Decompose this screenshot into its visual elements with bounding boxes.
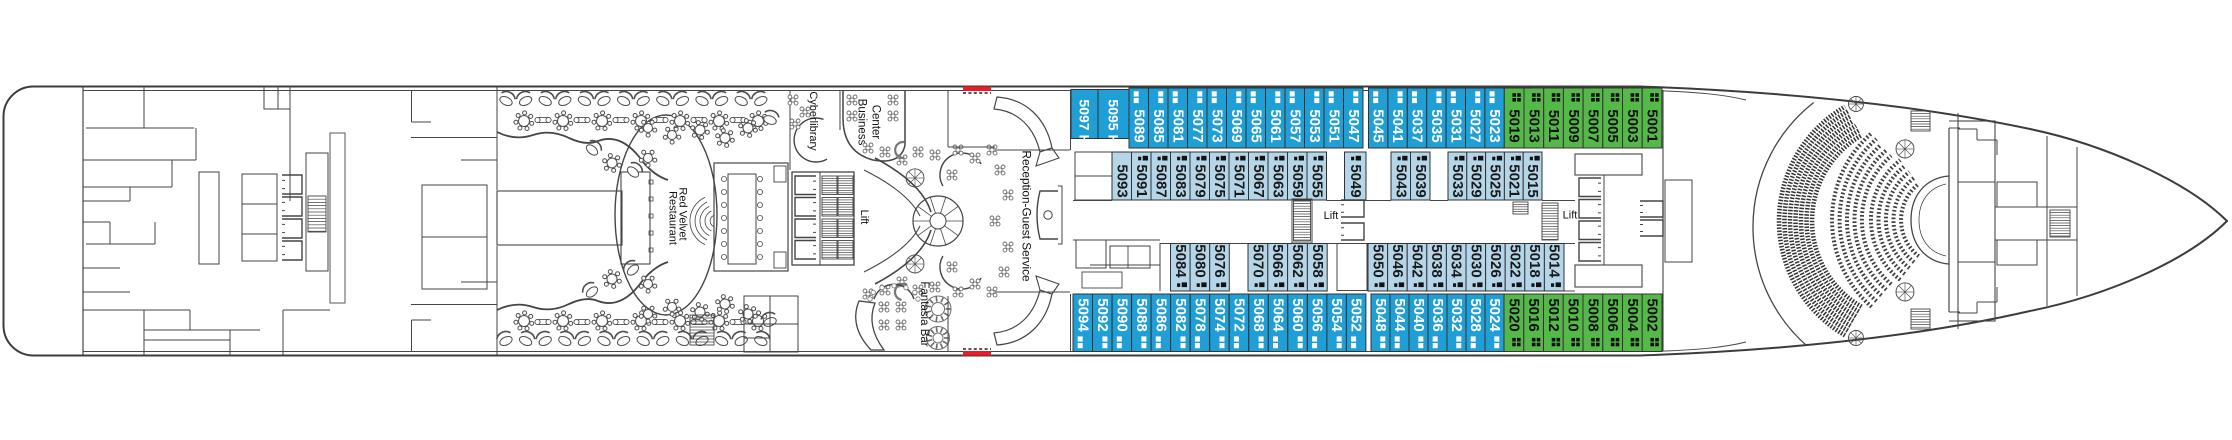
svg-text:5083: 5083 <box>1172 164 1189 197</box>
svg-text:5035: 5035 <box>1428 109 1445 142</box>
svg-text:5080: 5080 <box>1191 244 1208 277</box>
svg-text:5087: 5087 <box>1152 164 1169 197</box>
svg-text:5049: 5049 <box>1347 164 1364 197</box>
svg-text:5082: 5082 <box>1172 298 1189 331</box>
svg-text:5065: 5065 <box>1247 109 1264 142</box>
svg-text:5077: 5077 <box>1189 109 1206 142</box>
svg-text:5057: 5057 <box>1286 109 1303 142</box>
svg-text:Lift: Lift <box>1563 210 1578 222</box>
svg-text:5092: 5092 <box>1094 298 1111 331</box>
svg-text:5022: 5022 <box>1507 244 1524 277</box>
svg-text:5036: 5036 <box>1429 298 1446 331</box>
svg-text:5020: 5020 <box>1505 298 1522 331</box>
svg-text:5028: 5028 <box>1467 298 1484 331</box>
svg-text:5079: 5079 <box>1191 164 1208 197</box>
svg-text:5075: 5075 <box>1211 164 1228 197</box>
svg-text:Lift: Lift <box>1324 210 1339 222</box>
svg-text:5018: 5018 <box>1526 244 1543 277</box>
svg-text:5032: 5032 <box>1448 298 1465 331</box>
svg-text:5024: 5024 <box>1486 298 1503 332</box>
svg-text:5072: 5072 <box>1231 298 1248 331</box>
svg-text:Center: Center <box>870 105 882 140</box>
svg-text:5050: 5050 <box>1369 244 1386 277</box>
svg-text:5001: 5001 <box>1644 109 1661 142</box>
svg-text:5026: 5026 <box>1487 244 1504 277</box>
svg-text:5041: 5041 <box>1389 109 1406 142</box>
svg-text:5007: 5007 <box>1584 109 1601 142</box>
svg-text:5012: 5012 <box>1545 298 1562 331</box>
svg-text:5009: 5009 <box>1565 109 1582 142</box>
svg-text:5091: 5091 <box>1133 164 1150 197</box>
svg-text:5029: 5029 <box>1468 164 1485 197</box>
svg-text:Cyberlibrary: Cyberlibrary <box>807 91 819 151</box>
svg-text:5039: 5039 <box>1412 164 1429 197</box>
svg-text:5061: 5061 <box>1267 109 1284 142</box>
svg-text:5078: 5078 <box>1191 298 1208 331</box>
svg-text:5040: 5040 <box>1410 298 1427 331</box>
svg-text:5045: 5045 <box>1370 109 1387 142</box>
svg-text:5064: 5064 <box>1270 298 1287 332</box>
svg-text:Business: Business <box>856 99 868 146</box>
svg-text:5073: 5073 <box>1208 109 1225 142</box>
svg-text:5085: 5085 <box>1150 109 1167 142</box>
svg-text:5006: 5006 <box>1604 298 1621 331</box>
svg-text:5011: 5011 <box>1545 110 1562 143</box>
svg-text:5086: 5086 <box>1152 298 1169 331</box>
svg-text:5031: 5031 <box>1447 109 1464 142</box>
svg-text:5044: 5044 <box>1391 298 1408 332</box>
svg-text:5042: 5042 <box>1409 244 1426 277</box>
svg-text:5023: 5023 <box>1486 109 1503 142</box>
svg-text:5053: 5053 <box>1306 109 1323 142</box>
svg-text:5094: 5094 <box>1074 298 1091 332</box>
svg-text:Reception-Guest Service: Reception-Guest Service <box>1020 150 1034 282</box>
svg-text:Lift: Lift <box>858 210 870 225</box>
svg-text:5038: 5038 <box>1428 244 1445 277</box>
svg-text:5066: 5066 <box>1269 244 1286 277</box>
svg-text:Red Velvet: Red Velvet <box>677 187 689 240</box>
svg-text:5059: 5059 <box>1289 164 1306 197</box>
svg-text:5003: 5003 <box>1624 109 1641 142</box>
svg-text:5013: 5013 <box>1525 109 1542 142</box>
svg-text:5014: 5014 <box>1546 244 1563 278</box>
svg-text:5097 H: 5097 H <box>1077 99 1093 144</box>
svg-text:5037: 5037 <box>1409 109 1426 142</box>
svg-text:5051: 5051 <box>1325 109 1342 142</box>
svg-text:5067: 5067 <box>1250 164 1267 197</box>
svg-text:5002: 5002 <box>1644 298 1661 331</box>
svg-text:5043: 5043 <box>1392 164 1409 197</box>
svg-text:5062: 5062 <box>1289 244 1306 277</box>
svg-text:5016: 5016 <box>1525 298 1542 331</box>
svg-text:5033: 5033 <box>1449 164 1466 197</box>
svg-text:5005: 5005 <box>1604 109 1621 142</box>
svg-text:5054: 5054 <box>1328 298 1345 332</box>
svg-text:5030: 5030 <box>1467 244 1484 277</box>
svg-text:5027: 5027 <box>1467 109 1484 142</box>
svg-text:5048: 5048 <box>1372 298 1389 331</box>
svg-text:5089: 5089 <box>1130 109 1147 142</box>
svg-text:5058: 5058 <box>1309 244 1326 277</box>
svg-text:5095 H: 5095 H <box>1106 99 1122 144</box>
svg-text:5063: 5063 <box>1269 164 1286 197</box>
svg-text:5021: 5021 <box>1505 164 1522 197</box>
svg-text:5025: 5025 <box>1487 164 1504 197</box>
svg-text:5076: 5076 <box>1211 244 1228 277</box>
svg-text:5034: 5034 <box>1448 244 1465 278</box>
svg-text:5055: 5055 <box>1308 164 1325 197</box>
svg-text:5046: 5046 <box>1389 244 1406 277</box>
svg-text:5010: 5010 <box>1565 298 1582 331</box>
svg-text:5081: 5081 <box>1169 109 1186 142</box>
svg-text:5060: 5060 <box>1289 298 1306 331</box>
svg-text:5088: 5088 <box>1133 298 1150 331</box>
svg-text:5047: 5047 <box>1345 109 1362 142</box>
svg-text:5070: 5070 <box>1249 244 1266 277</box>
svg-text:5093: 5093 <box>1113 164 1130 197</box>
svg-text:5068: 5068 <box>1250 298 1267 331</box>
svg-text:5008: 5008 <box>1584 298 1601 331</box>
svg-text:5071: 5071 <box>1230 164 1247 197</box>
svg-text:Fantasia Bar: Fantasia Bar <box>918 281 930 346</box>
svg-text:5090: 5090 <box>1113 298 1130 331</box>
svg-text:5015: 5015 <box>1524 164 1541 197</box>
svg-text:5052: 5052 <box>1348 298 1365 331</box>
svg-text:5084: 5084 <box>1172 244 1189 278</box>
svg-text:5074: 5074 <box>1211 298 1228 332</box>
svg-text:5019: 5019 <box>1506 109 1523 142</box>
svg-text:5004: 5004 <box>1624 298 1641 332</box>
svg-text:5056: 5056 <box>1309 298 1326 331</box>
svg-text:5069: 5069 <box>1228 109 1245 142</box>
